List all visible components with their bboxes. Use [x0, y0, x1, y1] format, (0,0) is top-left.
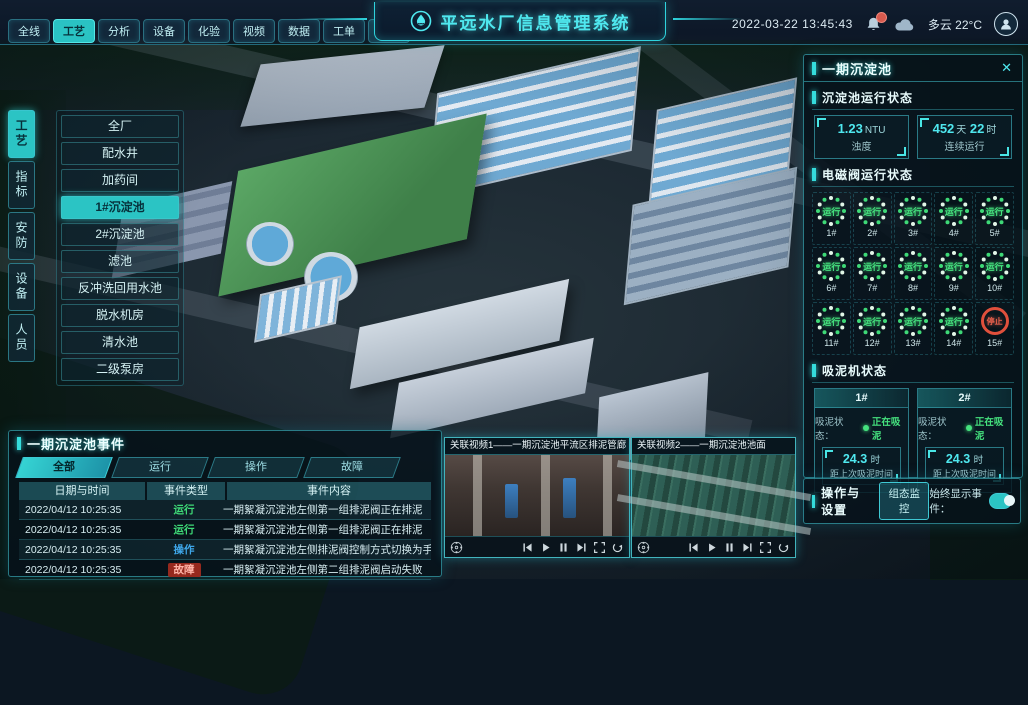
valve-13#[interactable]: 运行13#: [894, 302, 933, 355]
event-tab-label: 故障: [308, 458, 396, 477]
event-time: 2022/04/12 10:25:35: [19, 504, 145, 516]
header-right-group: 2022-03-22 13:45:43 多云 22°C: [732, 12, 1018, 36]
valve-id-label: 12#: [865, 338, 880, 348]
menu-item-配水井[interactable]: 配水井: [61, 142, 179, 165]
scene-shape: [617, 460, 811, 501]
event-content: 一期絮凝沉淀池左侧第一组排泥阀正在排泥: [223, 502, 431, 517]
valve-status-label: 运行: [938, 195, 970, 227]
event-row[interactable]: 2022/04/12 10:25:35运行一期絮凝沉淀池左侧第一组排泥阀正在排泥: [19, 520, 431, 540]
valve-id-label: 1#: [826, 228, 836, 238]
scene-shape: [473, 455, 482, 536]
skip-back-icon[interactable]: [521, 541, 534, 554]
valve-id-label: 10#: [987, 283, 1002, 293]
event-type: 故障: [145, 562, 223, 577]
menu-item-加药间[interactable]: 加药间: [61, 169, 179, 192]
fullscreen-icon[interactable]: [759, 541, 772, 554]
event-type: 操作: [145, 542, 223, 557]
valve-status-label: 运行: [897, 195, 929, 227]
event-tab-操作[interactable]: 操作: [207, 457, 305, 478]
notification-badge: [876, 12, 887, 23]
section-header-run-status: 沉淀池运行状态: [812, 89, 1014, 110]
events-title: 一期沉淀池事件: [27, 434, 125, 453]
main-nav-tabs: 全线工艺分析设备化验视频数据工单系统: [8, 19, 410, 43]
user-avatar[interactable]: [994, 12, 1018, 36]
valve-id-label: 2#: [867, 228, 877, 238]
valve-ring-icon: 运行: [938, 250, 970, 282]
event-content: 一期絮凝沉淀池左侧第一组排泥阀正在排泥: [223, 522, 431, 537]
side-tab-工艺[interactable]: 工艺: [8, 110, 35, 158]
sedimentation-pool-panel: 一期沉淀池 ✕ 沉淀池运行状态 1.23NTU 浊度 452天 22时 连续运行…: [803, 54, 1023, 478]
panel-title: 一期沉淀池: [822, 59, 999, 78]
valve-id-label: 9#: [949, 283, 959, 293]
main-tab-工单[interactable]: 工单: [323, 19, 365, 43]
cloud-icon: [894, 17, 916, 32]
side-tab-设备[interactable]: 设备: [8, 263, 35, 311]
video-panel-2: 关联视频2——一期沉淀池池面: [631, 437, 796, 558]
event-type: 运行: [145, 522, 223, 537]
valve-status-label: 运行: [856, 250, 888, 282]
event-content: 一期絮凝沉淀池左侧第二组排泥阀启动失败: [223, 562, 431, 577]
event-tab-运行[interactable]: 运行: [111, 457, 209, 478]
valve-id-label: 4#: [949, 228, 959, 238]
events-table-header: 日期与时间 事件类型 事件内容: [19, 482, 431, 500]
valve-9#[interactable]: 运行9#: [934, 247, 973, 300]
valve-status-label: 运行: [979, 195, 1011, 227]
valve-status-label: 运行: [815, 305, 847, 337]
close-icon[interactable]: ✕: [999, 60, 1014, 76]
valve-ring-icon: 运行: [938, 305, 970, 337]
valve-id-label: 7#: [867, 283, 877, 293]
event-time: 2022/04/12 10:25:35: [19, 524, 145, 536]
valve-4#[interactable]: 运行4#: [934, 192, 973, 245]
valve-status-label: 运行: [897, 305, 929, 337]
section-tick-icon: [812, 495, 815, 508]
valve-id-label: 8#: [908, 283, 918, 293]
valve-ring-icon: 运行: [979, 195, 1011, 227]
valve-ring-icon: 运行: [856, 195, 888, 227]
menu-item-1#沉淀池[interactable]: 1#沉淀池: [61, 196, 179, 219]
valve-id-label: 13#: [905, 338, 920, 348]
scene-shape: [505, 484, 518, 518]
valve-11#[interactable]: 运行11#: [812, 302, 851, 355]
valve-ring-icon: 运行: [938, 195, 970, 227]
valve-status-label: 停止: [979, 305, 1011, 337]
event-tab-全部[interactable]: 全部: [15, 457, 113, 478]
valve-2#[interactable]: 运行2#: [853, 192, 892, 245]
valve-status-label: 运行: [938, 305, 970, 337]
valve-status-grid: 运行1#运行2#运行3#运行4#运行5#运行6#运行7#运行8#运行9#运行10…: [812, 192, 1014, 355]
status-dot-icon: [966, 425, 972, 431]
scada-monitor-button[interactable]: 组态监控: [879, 482, 929, 520]
valve-id-label: 3#: [908, 228, 918, 238]
video-frame[interactable]: [445, 455, 629, 536]
event-row[interactable]: 2022/04/12 10:25:35运行一期絮凝沉淀池左侧第一组排泥阀正在排泥: [19, 500, 431, 520]
always-show-events-label: 始终显示事件：: [929, 486, 985, 516]
valve-5#[interactable]: 运行5#: [975, 192, 1014, 245]
event-time: 2022/04/12 10:25:35: [19, 564, 145, 576]
bell-icon[interactable]: [865, 16, 882, 33]
pause-icon[interactable]: [723, 541, 736, 554]
page-title: 平远水厂信息管理系统: [441, 9, 631, 34]
uptime-stat: 452天 22时 连续运行: [917, 115, 1012, 159]
scene-shape: [541, 455, 550, 536]
ptz-pad-icon[interactable]: [450, 541, 463, 554]
ptz-pad-icon[interactable]: [637, 541, 650, 554]
section-tick-icon: [812, 168, 816, 181]
main-tab-视频[interactable]: 视频: [233, 19, 275, 43]
event-tab-故障[interactable]: 故障: [303, 457, 401, 478]
col-header-content: 事件内容: [227, 482, 431, 500]
valve-15#[interactable]: 停止15#: [975, 302, 1014, 355]
event-row[interactable]: 2022/04/12 10:25:35操作一期絮凝沉淀池左侧排泥阀控制方式切换为…: [19, 540, 431, 560]
valve-ring-icon: 运行: [979, 250, 1011, 282]
events-panel: 一期沉淀池事件 全部运行操作故障 日期与时间 事件类型 事件内容 2022/04…: [8, 430, 442, 577]
main-tab-分析[interactable]: 分析: [98, 19, 140, 43]
water-drop-logo-icon: [410, 10, 432, 32]
valve-ring-icon: 运行: [815, 250, 847, 282]
menu-item-清水池[interactable]: 清水池: [61, 331, 179, 354]
scene-shape: [563, 478, 576, 518]
pause-icon[interactable]: [557, 541, 570, 554]
play-icon[interactable]: [539, 541, 552, 554]
side-tab-指标[interactable]: 指标: [8, 161, 35, 209]
top-header: 全线工艺分析设备化验视频数据工单系统 平远水厂信息管理系统 2022-03-22…: [0, 0, 1028, 45]
event-tab-label: 操作: [212, 458, 300, 477]
scene-shape: [603, 455, 612, 536]
valve-ring-icon: 运行: [897, 195, 929, 227]
status-dot-icon: [863, 425, 869, 431]
valve-8#[interactable]: 运行8#: [894, 247, 933, 300]
event-row[interactable]: 2022/04/12 10:25:35故障一期絮凝沉淀池左侧第二组排泥阀启动失败: [19, 560, 431, 580]
valve-ring-icon: 运行: [856, 250, 888, 282]
video-panel-1: 关联视频1——一期沉淀池平流区排泥管廊: [444, 437, 630, 558]
valve-id-label: 5#: [990, 228, 1000, 238]
valve-ring-icon: 运行: [897, 305, 929, 337]
run-status-stats: 1.23NTU 浊度 452天 22时 连续运行: [814, 115, 1012, 159]
valve-status-label: 运行: [938, 250, 970, 282]
section-tick-icon: [812, 91, 816, 104]
col-header-datetime: 日期与时间: [19, 482, 145, 500]
video-frame[interactable]: [632, 455, 795, 536]
main-tab-设备[interactable]: 设备: [143, 19, 185, 43]
side-tab-安防[interactable]: 安防: [8, 212, 35, 260]
menu-item-反冲洗回用水池[interactable]: 反冲洗回用水池: [61, 277, 179, 300]
settings-title: 操作与设置: [821, 484, 871, 518]
section-header-mud: 吸泥机状态: [812, 362, 1014, 383]
event-content: 一期絮凝沉淀池左侧排泥阀控制方式切换为手动: [223, 542, 431, 557]
panel-titlebar: 一期沉淀池 ✕: [804, 55, 1022, 82]
loop-icon[interactable]: [777, 541, 790, 554]
valve-status-label: 运行: [856, 305, 888, 337]
valve-6#[interactable]: 运行6#: [812, 247, 851, 300]
valve-id-label: 15#: [987, 338, 1002, 348]
turbidity-stat: 1.23NTU 浊度: [814, 115, 909, 159]
valve-status-label: 运行: [897, 250, 929, 282]
valve-id-label: 11#: [824, 338, 838, 348]
section-tick-icon: [812, 364, 816, 377]
area-menu: 全厂配水井加药间1#沉淀池2#沉淀池滤池反冲洗回用水池脱水机房清水池二级泵房: [56, 110, 184, 386]
app-title-block: 平远水厂信息管理系统: [374, 2, 666, 41]
video-title: 关联视频1——一期沉淀池平流区排泥管廊: [445, 438, 629, 455]
video-controls: [632, 536, 795, 557]
valve-12#[interactable]: 运行12#: [853, 302, 892, 355]
menu-item-2#沉淀池[interactable]: 2#沉淀池: [61, 223, 179, 246]
main-tab-工艺[interactable]: 工艺: [53, 19, 95, 43]
valve-ring-icon: 运行: [815, 195, 847, 227]
valve-status-label: 运行: [979, 250, 1011, 282]
event-tab-label: 运行: [116, 458, 204, 477]
toggle-knob: [1004, 495, 1015, 506]
menu-item-二级泵房[interactable]: 二级泵房: [61, 358, 179, 381]
video-controls: [445, 536, 629, 557]
valve-ring-icon: 运行: [856, 305, 888, 337]
event-time: 2022/04/12 10:25:35: [19, 544, 145, 556]
play-icon[interactable]: [705, 541, 718, 554]
loop-icon[interactable]: [611, 541, 624, 554]
valve-7#[interactable]: 运行7#: [853, 247, 892, 300]
valve-status-label: 运行: [815, 250, 847, 282]
event-filter-tabs: 全部运行操作故障: [19, 457, 431, 478]
scene-shape: [617, 494, 811, 535]
skip-forward-icon[interactable]: [575, 541, 588, 554]
menu-item-全厂[interactable]: 全厂: [61, 115, 179, 138]
skip-back-icon[interactable]: [687, 541, 700, 554]
valve-10#[interactable]: 运行10#: [975, 247, 1014, 300]
always-show-events-toggle[interactable]: [989, 493, 1012, 509]
events-titlebar: 一期沉淀池事件: [9, 431, 441, 455]
side-category-tabs: 工艺指标安防设备人员: [8, 110, 35, 362]
datetime-display: 2022-03-22 13:45:43: [732, 17, 853, 31]
side-tab-人员[interactable]: 人员: [8, 314, 35, 362]
fullscreen-icon[interactable]: [593, 541, 606, 554]
valve-3#[interactable]: 运行3#: [894, 192, 933, 245]
valve-id-label: 14#: [946, 338, 961, 348]
title-tick-icon: [812, 62, 816, 75]
app-root: { "colors": { "accent": "#35dcdc", "runn…: [0, 0, 1028, 579]
main-tab-化验[interactable]: 化验: [188, 19, 230, 43]
valve-ring-icon: 停止: [979, 305, 1011, 337]
col-header-type: 事件类型: [147, 482, 225, 500]
valve-id-label: 6#: [826, 283, 836, 293]
valve-status-label: 运行: [815, 195, 847, 227]
valve-status-label: 运行: [856, 195, 888, 227]
valve-ring-icon: 运行: [897, 250, 929, 282]
events-table-body: 2022/04/12 10:25:35运行一期絮凝沉淀池左侧第一组排泥阀正在排泥…: [19, 500, 431, 580]
title-tick-icon: [17, 437, 21, 450]
video-title: 关联视频2——一期沉淀池池面: [632, 438, 795, 455]
main-tab-全线[interactable]: 全线: [8, 19, 50, 43]
weather-display: 多云 22°C: [928, 16, 982, 33]
skip-forward-icon[interactable]: [741, 541, 754, 554]
main-tab-数据[interactable]: 数据: [278, 19, 320, 43]
settings-panel: 操作与设置 组态监控 始终显示事件：: [803, 478, 1021, 524]
menu-item-滤池[interactable]: 滤池: [61, 250, 179, 273]
section-header-valves: 电磁阀运行状态: [812, 166, 1014, 187]
event-tab-label: 全部: [20, 458, 108, 477]
valve-1#[interactable]: 运行1#: [812, 192, 851, 245]
valve-14#[interactable]: 运行14#: [934, 302, 973, 355]
event-type: 运行: [145, 502, 223, 517]
menu-item-脱水机房[interactable]: 脱水机房: [61, 304, 179, 327]
valve-ring-icon: 运行: [815, 305, 847, 337]
